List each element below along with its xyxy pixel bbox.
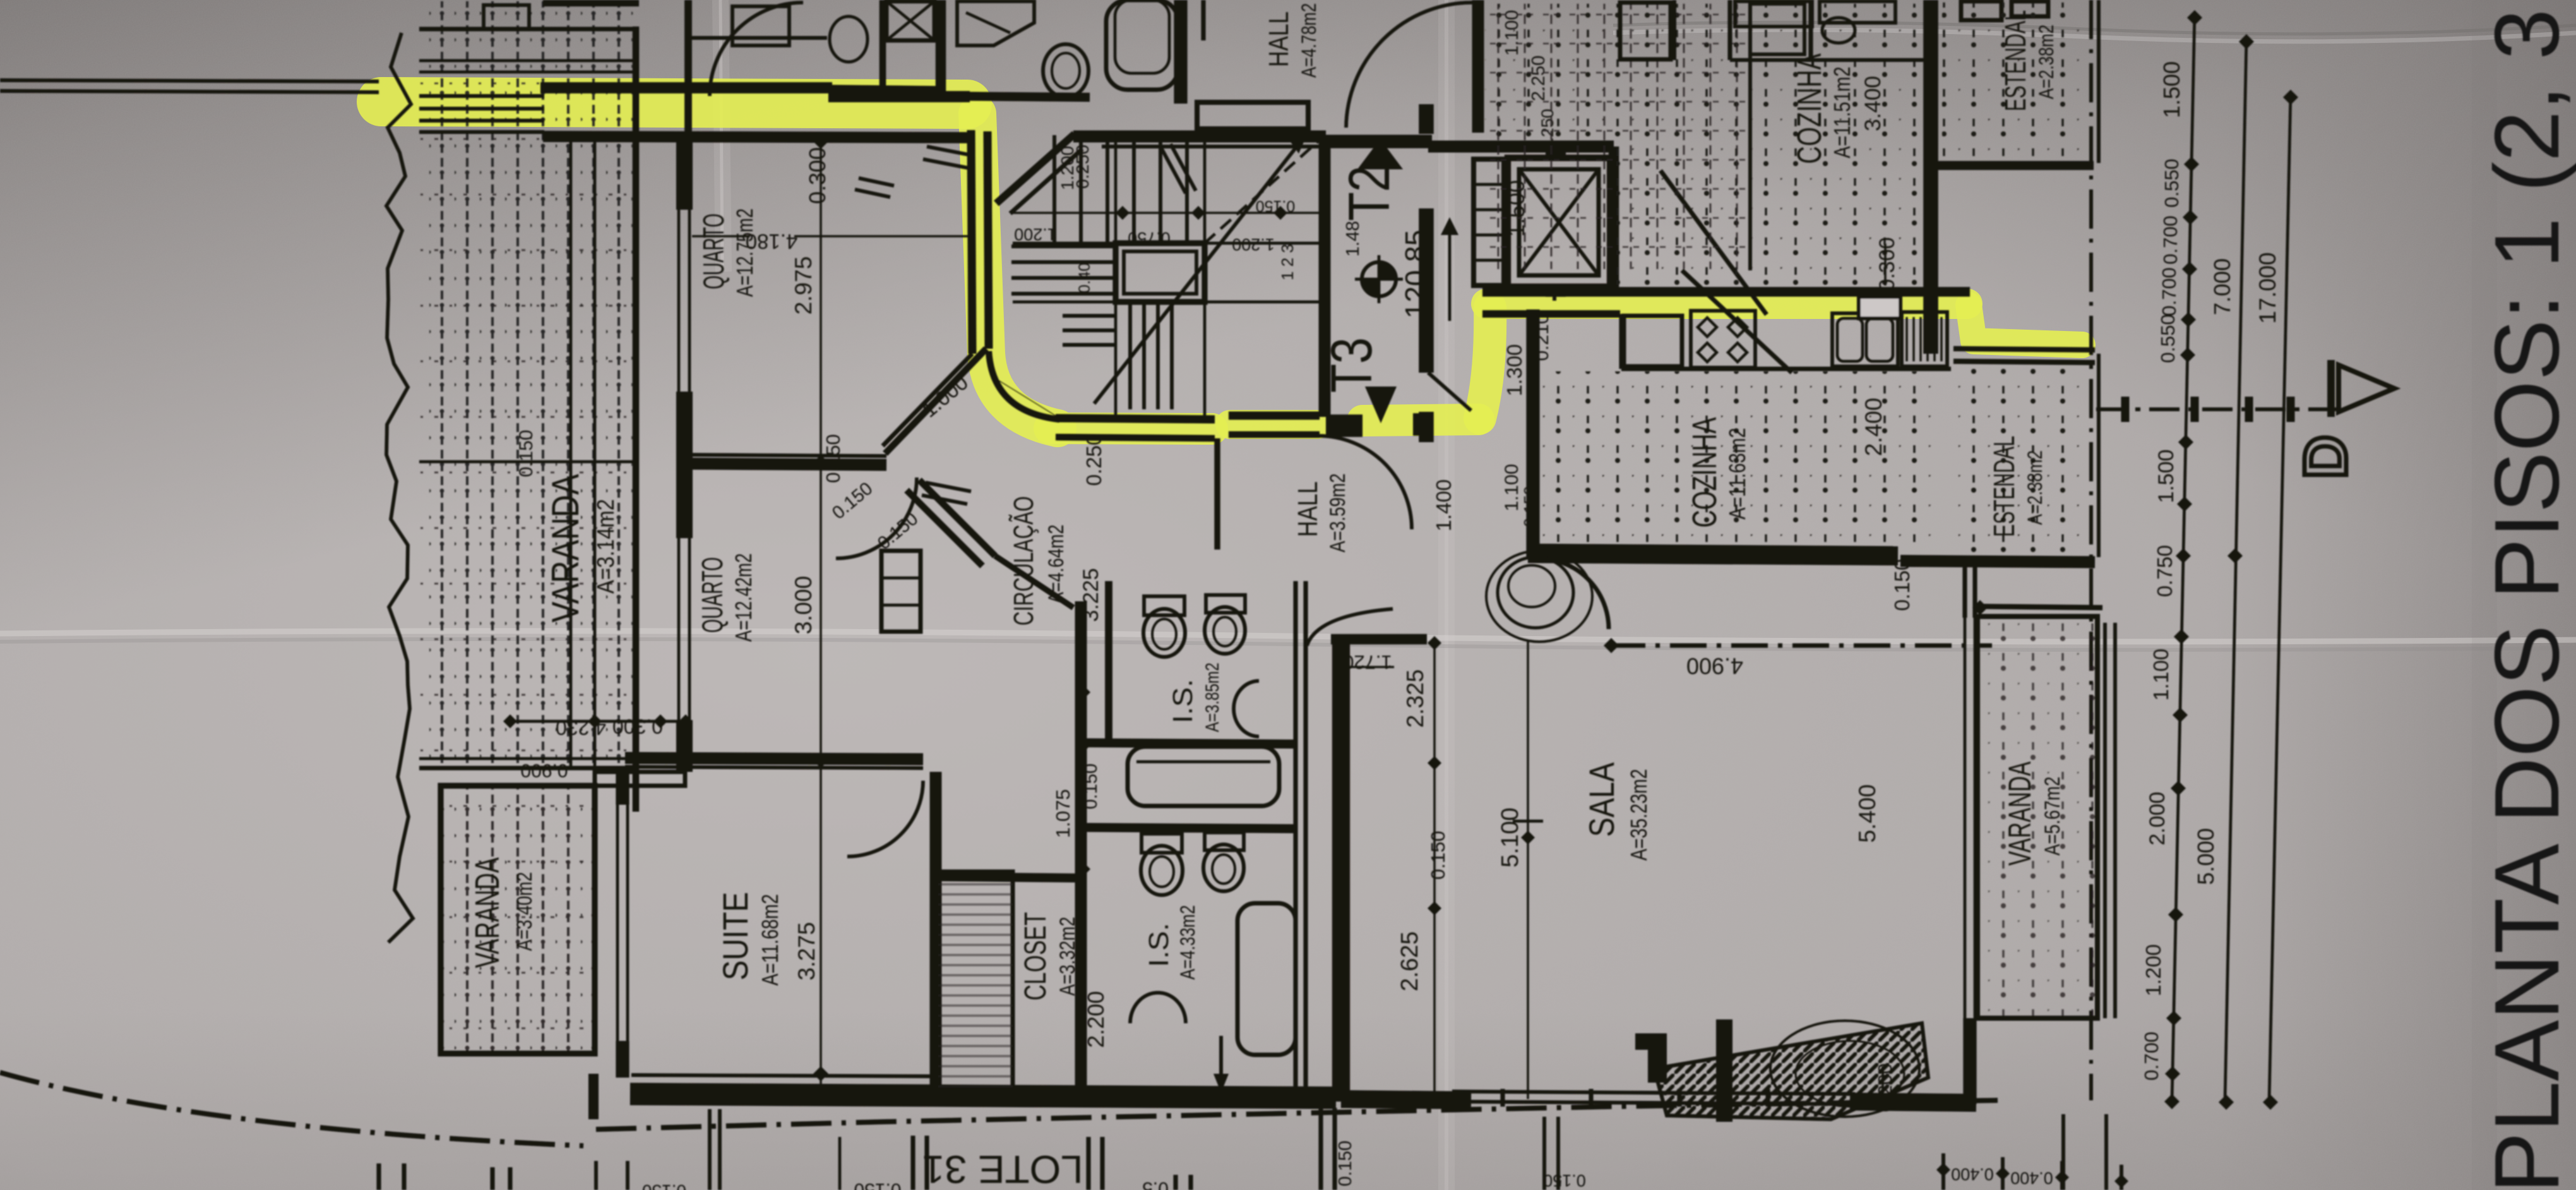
svg-text:4.900: 4.900	[1686, 653, 1743, 679]
svg-text:1.400: 1.400	[1432, 479, 1455, 532]
svg-text:2.625: 2.625	[1397, 931, 1423, 991]
svg-text:A=12.42m2: A=12.42m2	[730, 553, 756, 642]
svg-text:0.400: 0.400	[2010, 1169, 2053, 1187]
svg-text:1.100: 1.100	[1501, 464, 1522, 511]
svg-text:0.40: 0.40	[1076, 263, 1094, 294]
svg-text:A=4.33m2: A=4.33m2	[1176, 905, 1199, 980]
svg-text:0.150: 0.150	[1427, 831, 1449, 880]
svg-text:1.200: 1.200	[1232, 235, 1275, 254]
svg-text:4.230: 4.230	[556, 716, 606, 739]
svg-text:D: D	[2292, 435, 2359, 479]
svg-text:17.000: 17.000	[2255, 252, 2281, 323]
svg-text:3.000: 3.000	[790, 576, 816, 635]
svg-text:0.900: 0.900	[520, 760, 568, 781]
svg-text:A=11.51m2: A=11.51m2	[1829, 67, 1855, 159]
svg-text:SALA: SALA	[1582, 762, 1621, 837]
svg-text:0.150: 0.150	[1335, 1141, 1356, 1187]
svg-text:0.210: 0.210	[1532, 313, 1553, 361]
svg-text:T2: T2	[1337, 165, 1402, 221]
svg-text:A=4.64m2: A=4.64m2	[1044, 525, 1068, 604]
svg-text:120.85: 120.85	[1399, 230, 1432, 319]
svg-text:5.100: 5.100	[1497, 807, 1524, 867]
svg-text:0.5: 0.5	[1142, 1178, 1169, 1190]
svg-text:VARANDA: VARANDA	[544, 474, 587, 623]
svg-text:0.300: 0.300	[804, 147, 830, 204]
svg-text:A=3.14m2: A=3.14m2	[593, 499, 619, 594]
svg-text:SUITE: SUITE	[715, 892, 755, 980]
svg-text:1.075: 1.075	[1052, 789, 1074, 838]
svg-text:0.700: 0.700	[2140, 1031, 2162, 1081]
svg-text:A=5.67m2: A=5.67m2	[2041, 777, 2065, 856]
svg-text:A=3.59m2: A=3.59m2	[1326, 474, 1350, 553]
svg-text:4.180: 4.180	[746, 230, 798, 253]
svg-text:VARANDA: VARANDA	[2002, 761, 2037, 865]
svg-text:ESTENDAL: ESTENDAL	[1999, 10, 2032, 111]
svg-text:A=11.68m2: A=11.68m2	[757, 894, 783, 986]
svg-text:0.300: 0.300	[612, 715, 663, 738]
svg-text:3.275: 3.275	[794, 922, 820, 981]
svg-text:A=3.40m2: A=3.40m2	[513, 872, 537, 951]
svg-text:2.000: 2.000	[2145, 791, 2169, 845]
svg-text:LOTE 31: LOTE 31	[922, 1147, 1083, 1190]
svg-text:CLOSET: CLOSET	[1019, 912, 1052, 1001]
svg-text:1.48: 1.48	[1343, 221, 1363, 256]
svg-text:0.550: 0.550	[2161, 159, 2183, 208]
svg-text:0.150: 0.150	[854, 1179, 901, 1190]
svg-text:5.400: 5.400	[1854, 784, 1880, 843]
svg-text:0.700: 0.700	[2158, 267, 2180, 316]
svg-text:1.100: 1.100	[2149, 649, 2173, 701]
svg-text:0.750: 0.750	[1128, 229, 1171, 248]
svg-text:I.S.: I.S.	[1143, 923, 1174, 967]
svg-text:COZINHA: COZINHA	[1791, 54, 1828, 164]
svg-text:1.720: 1.720	[1343, 651, 1392, 673]
svg-text:1 2 3: 1 2 3	[1278, 244, 1297, 280]
svg-text:1.500: 1.500	[2159, 61, 2185, 118]
svg-text:0.400: 0.400	[1951, 1165, 1994, 1184]
svg-text:1.200: 1.200	[2142, 944, 2165, 997]
svg-text:1.500: 1.500	[2154, 449, 2178, 503]
svg-text:7.000: 7.000	[2209, 258, 2235, 315]
svg-text:A=11.63m2: A=11.63m2	[1724, 428, 1750, 520]
svg-text:HALL: HALL	[1292, 481, 1323, 537]
svg-text:0.250: 0.250	[1082, 434, 1106, 486]
svg-text:A=3.85m2: A=3.85m2	[1202, 663, 1223, 732]
svg-text:I.S.: I.S.	[1167, 679, 1198, 723]
svg-text:HALL: HALL	[1263, 11, 1294, 67]
svg-text:T3: T3	[1320, 337, 1384, 393]
svg-text:ESTENDAL: ESTENDAL	[1988, 436, 2020, 537]
svg-text:QUARTO: QUARTO	[696, 557, 729, 633]
svg-text:0.200: 0.200	[1874, 1063, 1896, 1112]
svg-text:A=4.78m2: A=4.78m2	[1297, 3, 1320, 78]
svg-text:1.300: 1.300	[1503, 344, 1526, 397]
svg-text:0.750: 0.750	[2153, 545, 2176, 598]
svg-text:5.000: 5.000	[2193, 828, 2219, 885]
svg-text:0.300: 0.300	[1875, 237, 1899, 291]
svg-text:CIRCULAÇÃO: CIRCULAÇÃO	[1008, 496, 1039, 626]
svg-text:0.550: 0.550	[2157, 314, 2179, 363]
svg-text:A=2.38m2: A=2.38m2	[2024, 450, 2046, 525]
svg-text:0.150: 0.150	[822, 434, 844, 483]
svg-text:PLANTA DOS PISOS: 1 (2, 3: PLANTA DOS PISOS: 1 (2, 3	[2476, 9, 2576, 1190]
svg-text:0.150: 0.150	[642, 1181, 686, 1190]
svg-text:2.325: 2.325	[1402, 670, 1428, 728]
svg-text:A=2.38m2: A=2.38m2	[2035, 25, 2058, 99]
svg-text:COZINHA: COZINHA	[1686, 418, 1724, 528]
svg-text:1.200: 1.200	[1014, 225, 1057, 244]
svg-text:A=35.23m2: A=35.23m2	[1626, 769, 1652, 861]
svg-text:0.700: 0.700	[2159, 215, 2181, 265]
svg-text:0.150: 0.150	[1520, 486, 1539, 527]
svg-text:0.150: 0.150	[1256, 197, 1296, 215]
svg-text:0.250: 0.250	[1073, 145, 1092, 189]
svg-text:2.400: 2.400	[1861, 398, 1887, 457]
svg-text:3.400: 3.400	[1861, 76, 1885, 131]
svg-text:VARANDA: VARANDA	[468, 858, 506, 968]
svg-text:QUARTO: QUARTO	[697, 213, 730, 289]
svg-text:0.150: 0.150	[1543, 1171, 1586, 1190]
svg-text:2.975: 2.975	[790, 256, 816, 315]
svg-text:0.150: 0.150	[516, 430, 537, 477]
